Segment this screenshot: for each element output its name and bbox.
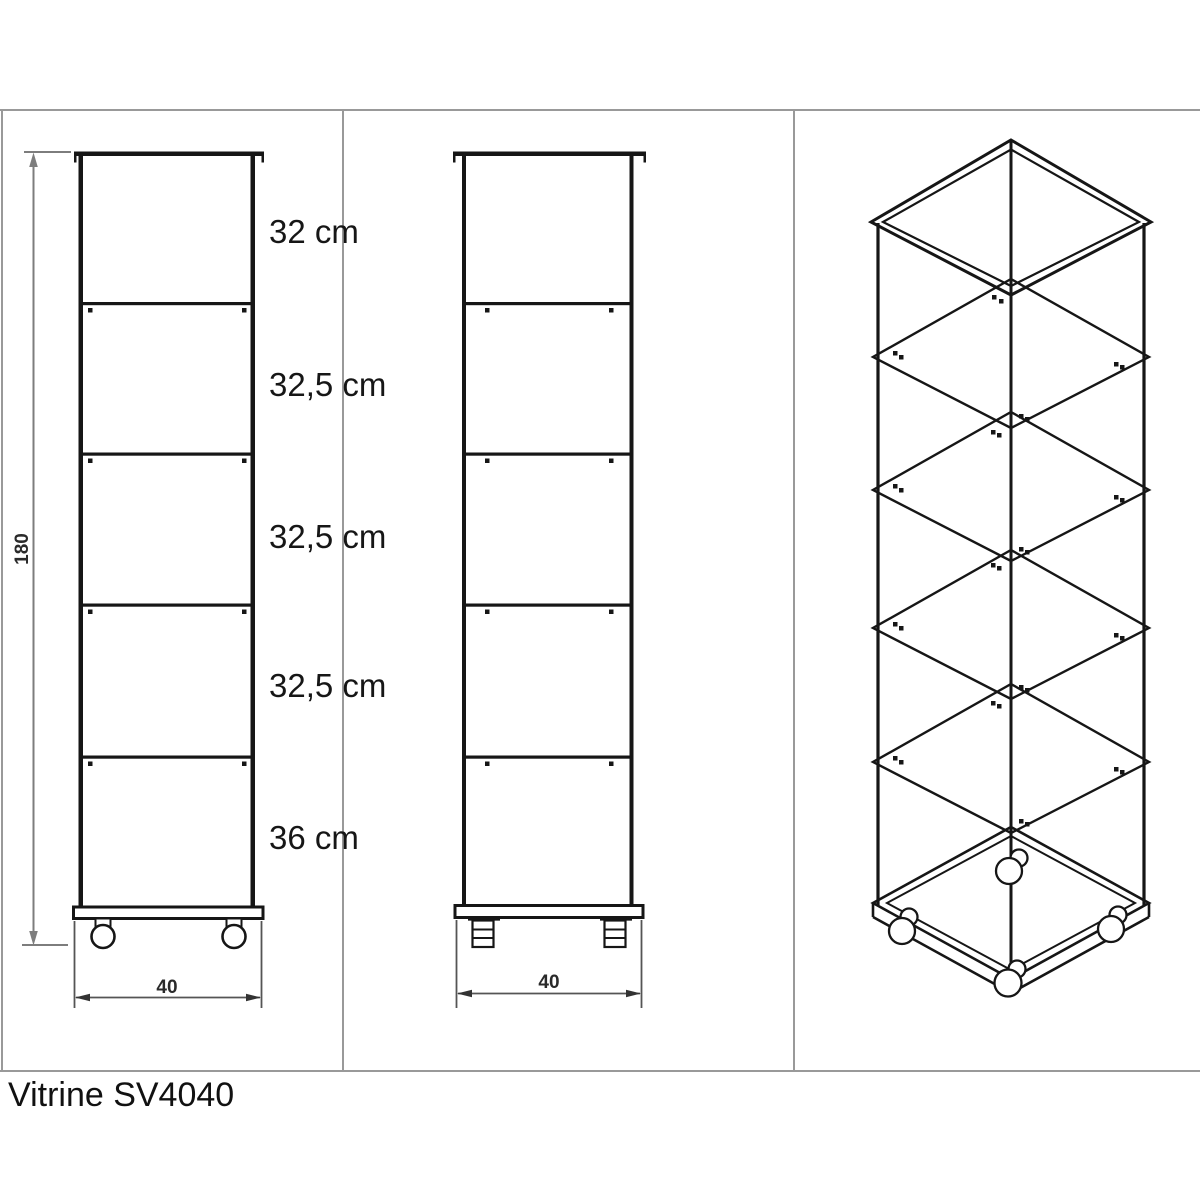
shelf-spacing-label-1: 32 cm (269, 214, 359, 249)
shelf-spacing-label-4: 32,5 cm (269, 668, 386, 703)
side-base (455, 906, 643, 948)
technical-drawing-sheet: 32 cm 32,5 cm 32,5 cm 32,5 cm 36 cm 180 … (0, 0, 1200, 1200)
front-view-drawing (22, 152, 264, 1009)
drawing-linework (0, 0, 1200, 1200)
front-cabinet-body (74, 152, 264, 908)
front-base (74, 907, 264, 948)
shelf-spacing-label-5: 36 cm (269, 820, 359, 855)
iso-caster-right (1098, 907, 1127, 943)
side-cabinet-body (453, 152, 646, 908)
side-view-drawing (453, 152, 646, 1009)
front-caster-right (223, 925, 246, 948)
side-caster-right (600, 920, 632, 948)
shelf-spacing-label-2: 32,5 cm (269, 367, 386, 402)
side-width-dimension-label: 40 (519, 972, 579, 994)
iso-view-drawing (871, 140, 1151, 997)
drawing-title: Vitrine SV4040 (8, 1077, 234, 1113)
side-caster-left (468, 920, 500, 948)
shelf-spacing-label-3: 32,5 cm (269, 519, 386, 554)
iso-caster-front (995, 961, 1026, 997)
height-dimension-label: 180 (12, 519, 34, 579)
front-caster-left (92, 925, 115, 948)
front-width-dimension-label: 40 (137, 977, 197, 999)
iso-caster-back (996, 850, 1028, 885)
sheet-frame (0, 110, 1200, 1071)
